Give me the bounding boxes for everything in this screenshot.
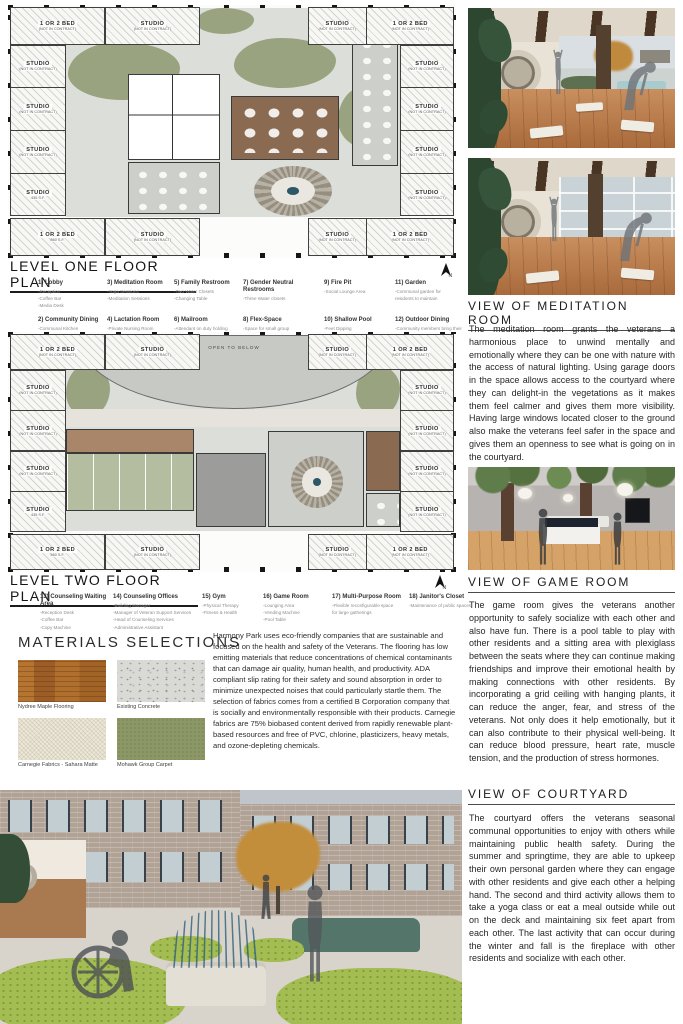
fabric-swatch — [18, 718, 106, 760]
unit-cell: STUDIO(NOT IN CONTRACT) — [105, 534, 201, 571]
legend-room-details: -Yoga Sessions -Meditation Sessions — [107, 288, 169, 302]
unit-cell: STUDIO(NOT IN CONTRACT) — [400, 491, 455, 532]
unit-sublabel: (NOT IN CONTRACT) — [19, 432, 56, 436]
plan2-garden-circle — [291, 456, 343, 508]
unit-sublabel: (NOT IN CONTRACT) — [392, 553, 429, 557]
wall-tv — [625, 498, 650, 523]
legend-room-name: 12) Outdoor Dining — [395, 317, 465, 324]
legend-item: 14) Counseling Offices -Building Manager… — [113, 594, 197, 631]
unit-sublabel: (NOT IN CONTRACT) — [408, 110, 445, 114]
wheelchair-user-silhouette — [68, 920, 146, 1004]
unit-cell: 1 OR 2 BED(NOT IN CONTRACT) — [366, 534, 454, 571]
legend-room-details: -Flexible reconfigurable space for large… — [332, 602, 404, 616]
legend-room-details: -Social Lounge Area — [324, 288, 390, 295]
fountain-basin — [166, 962, 266, 1006]
unit-cell: 1 OR 2 BED860 S.F. — [10, 534, 106, 571]
svg-text:N: N — [449, 273, 453, 278]
legend-room-details: -Lounging Area -Vending Machine -Pool Ta… — [263, 602, 327, 623]
legend-room-name: 4) Lactation Room — [107, 317, 169, 324]
legend-room-details: -Building Manager -Manager of Veteran Su… — [113, 602, 197, 630]
unit-sublabel: (NOT IN CONTRACT) — [408, 153, 445, 157]
material-caption: Nydree Maple Flooring — [18, 704, 106, 710]
unit-cell: 1 OR 2 BED(NOT IN CONTRACT) — [366, 218, 454, 257]
unit-sublabel: (NOT IN CONTRACT) — [134, 553, 171, 557]
unit-sublabel: (NOT IN CONTRACT) — [19, 110, 56, 114]
unit-sublabel: 860 S.F. — [51, 238, 65, 242]
unit-cell: STUDIO(NOT IN CONTRACT) — [10, 370, 67, 411]
north-arrow-icon: N — [438, 262, 454, 278]
plan2-units-right: STUDIO(NOT IN CONTRACT)STUDIO(NOT IN CON… — [400, 370, 454, 532]
unit-sublabel: (NOT IN CONTRACT) — [39, 27, 76, 31]
legend-item: 15) Gym -Physical Therapy -Fitness & Hea… — [202, 594, 258, 631]
unit-sublabel: (NOT IN CONTRACT) — [19, 472, 56, 476]
hanging-plants — [468, 467, 675, 498]
legend-room-name: 6) Mailroom — [174, 317, 238, 324]
fountain-jets — [173, 910, 259, 968]
concrete-swatch — [117, 660, 205, 702]
floor-plan-level-two: OPEN TO BELOW 1 OR 2 BED(NOT IN CONTRACT… — [8, 332, 456, 572]
globe-light — [563, 494, 573, 502]
unit-sublabel: (NOT IN CONTRACT) — [319, 27, 356, 31]
plant-silhouette — [468, 158, 501, 295]
legend-room-details: -Reception -Coffee Bar -Media Desk — [38, 288, 102, 309]
plan1-units-bottom-right: STUDIO(NOT IN CONTRACT)1 OR 2 BED(NOT IN… — [308, 218, 454, 256]
unit-sublabel: (NOT IN CONTRACT) — [392, 27, 429, 31]
material-caption: Existing Concrete — [117, 704, 205, 710]
unit-sublabel: (NOT IN CONTRACT) — [134, 353, 171, 357]
legend-room-name: 9) Fire Pit — [324, 280, 390, 287]
courtyard-render — [0, 790, 462, 1024]
legend-item: 17) Multi-Purpose Room -Flexible reconfi… — [332, 594, 404, 631]
floor-plan-level-one: 1 OR 2 BED(NOT IN CONTRACT)STUDIO(NOT IN… — [8, 5, 456, 258]
unit-sublabel: 435 S.F. — [31, 196, 45, 200]
legend-room-name: 10) Shallow Pool — [324, 317, 390, 324]
plan1-units-top-right: STUDIO(NOT IN CONTRACT)1 OR 2 BED(NOT IN… — [308, 7, 454, 45]
plan2-units-bottom-left: 1 OR 2 BED860 S.F.STUDIO(NOT IN CONTRACT… — [10, 534, 200, 570]
legend-room-name: 3) Meditation Room — [107, 280, 169, 287]
legend-room-name: 14) Counseling Offices — [113, 594, 197, 601]
unit-sublabel: (NOT IN CONTRACT) — [408, 196, 445, 200]
plan1-units-top-left: 1 OR 2 BED(NOT IN CONTRACT)STUDIO(NOT IN… — [10, 7, 200, 45]
unit-sublabel: (NOT IN CONTRACT) — [19, 153, 56, 157]
view-meditation-paragraph: The meditation room grants the veterans … — [469, 323, 675, 463]
legend-item: 5) Family Restroom -Two Water Closets -C… — [174, 280, 238, 310]
plan1-units-right: STUDIO(NOT IN CONTRACT)STUDIO(NOT IN CON… — [400, 45, 454, 216]
tree-trunk — [276, 886, 280, 914]
unit-sublabel: (NOT IN CONTRACT) — [134, 238, 171, 242]
presentation-board: 1 OR 2 BED(NOT IN CONTRACT)STUDIO(NOT IN… — [0, 0, 683, 1024]
yoga-figure-standing — [551, 44, 565, 100]
materials-title: MATERIALS SELECTIONS — [18, 634, 241, 651]
unit-cell: STUDIO(NOT IN CONTRACT) — [400, 130, 455, 174]
legend-item: 16) Game Room -Lounging Area -Vending Ma… — [263, 594, 327, 631]
legend-room-details: -Physical Therapy -Fitness & Health — [202, 602, 258, 616]
plan1-restroom-block — [128, 74, 220, 160]
material-caption: Mohawk Group Carpet — [117, 762, 205, 768]
plan1-garden-circle — [254, 166, 332, 216]
unit-cell: STUDIO435 S.F. — [10, 173, 67, 217]
unit-sublabel: (NOT IN CONTRACT) — [39, 353, 76, 357]
legend-item: 1) Lobby -Reception -Coffee Bar -Media D… — [38, 280, 102, 310]
legend-item: 13) Counseling Waiting Area -Reception D… — [40, 594, 108, 631]
unit-cell: STUDIO(NOT IN CONTRACT) — [105, 334, 201, 371]
unit-sublabel: (NOT IN CONTRACT) — [408, 472, 445, 476]
yoga-mats — [238, 103, 332, 153]
unit-cell: STUDIO(NOT IN CONTRACT) — [10, 451, 67, 492]
legend-room-name: 7) Gender Neutral Restrooms — [243, 280, 319, 294]
unit-cell: 1 OR 2 BED(NOT IN CONTRACT) — [366, 334, 454, 371]
level-two-legend: 13) Counseling Waiting Area -Reception D… — [40, 594, 473, 631]
unit-sublabel: (NOT IN CONTRACT) — [392, 238, 429, 242]
legend-room-name: 11) Garden — [395, 280, 465, 287]
game-room-render — [468, 467, 675, 570]
unit-cell: STUDIO(NOT IN CONTRACT) — [400, 410, 455, 451]
plan2-courtyard-below — [268, 431, 364, 527]
unit-sublabel: (NOT IN CONTRACT) — [408, 432, 445, 436]
legend-room-details: -Feet Dipping — [324, 325, 390, 332]
unit-cell: STUDIO(NOT IN CONTRACT) — [308, 534, 367, 571]
material-item-wood: Nydree Maple Flooring — [18, 660, 106, 710]
view-courtyard-heading: VIEW OF COURTYARD — [468, 787, 675, 805]
unit-sublabel: (NOT IN CONTRACT) — [408, 391, 445, 395]
materials-paragraph: Harmony Park uses eco-friendly companies… — [213, 630, 456, 751]
wood-column — [588, 174, 602, 245]
legend-item: 18) Janitor's Closet -Maintenance of pub… — [409, 594, 473, 631]
wood-flooring-swatch — [18, 660, 106, 702]
plan2-counseling-offices — [66, 453, 194, 511]
standing-person-silhouette — [300, 876, 330, 992]
legend-room-name: 8) Flex-Space — [243, 317, 319, 324]
plant-silhouette — [468, 8, 501, 148]
window-row — [8, 800, 232, 832]
landscape-planting — [234, 38, 336, 88]
meditation-room-render-closed — [468, 158, 675, 295]
open-to-below-label: OPEN TO BELOW — [208, 345, 259, 350]
unit-cell: STUDIO(NOT IN CONTRACT) — [105, 218, 201, 257]
material-item-carpet: Mohawk Group Carpet — [117, 718, 205, 768]
view-game-room-paragraph: The game room gives the veterans another… — [469, 599, 675, 765]
plan2-multi-purpose-room — [366, 431, 400, 491]
legend-room-name: 17) Multi-Purpose Room — [332, 594, 404, 601]
unit-cell: 1 OR 2 BED860 S.F. — [10, 218, 106, 257]
unit-sublabel: (NOT IN CONTRACT) — [408, 513, 445, 517]
view-courtyard-paragraph: The courtyard offers the veterans season… — [469, 812, 675, 965]
unit-cell: STUDIO(NOT IN CONTRACT) — [400, 451, 455, 492]
legend-room-details: -Reception Desk -Coffee Bar -Copy Machin… — [40, 609, 108, 630]
yoga-figure-bending — [613, 207, 657, 263]
unit-cell: STUDIO(NOT IN CONTRACT) — [308, 218, 367, 257]
plan2-gym — [196, 453, 266, 527]
person-silhouette — [534, 508, 552, 566]
legend-room-details: -Three Water closets — [243, 295, 319, 302]
plan2-counseling-corridor — [66, 429, 194, 453]
unit-cell: STUDIO(NOT IN CONTRACT) — [105, 7, 201, 46]
unit-sublabel: (NOT IN CONTRACT) — [19, 67, 56, 71]
legend-room-name: 16) Game Room — [263, 594, 327, 601]
person-silhouette — [609, 512, 626, 566]
plan2-game-room — [366, 493, 400, 527]
legend-room-details: -Communal garden for residents to mainta… — [395, 288, 465, 302]
wood-column — [596, 25, 610, 98]
unit-cell: 1 OR 2 BED(NOT IN CONTRACT) — [366, 7, 454, 46]
unit-cell: STUDIO(NOT IN CONTRACT) — [10, 87, 67, 131]
legend-room-name: 13) Counseling Waiting Area — [40, 594, 108, 608]
unit-cell: STUDIO435 S.F. — [10, 491, 67, 532]
yoga-figure-bending — [617, 56, 661, 112]
plan1-meditation-room — [231, 96, 339, 160]
meditation-room-render-open — [468, 8, 675, 148]
legend-item: 7) Gender Neutral Restrooms -Three Water… — [243, 280, 319, 310]
plan1-flex-space — [128, 162, 220, 214]
unit-sublabel: 435 S.F. — [31, 513, 45, 517]
unit-sublabel: (NOT IN CONTRACT) — [408, 67, 445, 71]
legend-room-name: 1) Lobby — [38, 280, 102, 287]
legend-room-details: -Two Water Closets -Changing Table — [174, 288, 238, 302]
carpet-swatch — [117, 718, 205, 760]
unit-cell: STUDIO(NOT IN CONTRACT) — [10, 45, 67, 89]
unit-sublabel: 860 S.F. — [51, 553, 65, 557]
unit-cell: STUDIO(NOT IN CONTRACT) — [10, 130, 67, 174]
plan2-units-left: STUDIO(NOT IN CONTRACT)STUDIO(NOT IN CON… — [10, 370, 66, 532]
view-game-room-heading: VIEW OF GAME ROOM — [468, 575, 675, 593]
north-arrow-icon: N — [432, 574, 448, 590]
plan2-units-top-left: 1 OR 2 BED(NOT IN CONTRACT)STUDIO(NOT IN… — [10, 334, 200, 370]
legend-room-details: -Private Nursing Room — [107, 325, 169, 332]
plan2-units-bottom-right: STUDIO(NOT IN CONTRACT)1 OR 2 BED(NOT IN… — [308, 534, 454, 570]
unit-cell: 1 OR 2 BED(NOT IN CONTRACT) — [10, 334, 106, 371]
legend-item: 9) Fire Pit -Social Lounge Area — [324, 280, 390, 310]
level-one-legend: 1) Lobby -Reception -Coffee Bar -Media D… — [38, 280, 465, 339]
legend-room-name: 15) Gym — [202, 594, 258, 601]
legend-room-name: 2) Community Dining — [38, 317, 102, 324]
unit-cell: STUDIO(NOT IN CONTRACT) — [308, 7, 367, 46]
unit-cell: STUDIO(NOT IN CONTRACT) — [400, 173, 455, 217]
unit-sublabel: (NOT IN CONTRACT) — [392, 353, 429, 357]
unit-cell: STUDIO(NOT IN CONTRACT) — [10, 410, 67, 451]
material-item-concrete: Existing Concrete — [117, 660, 205, 710]
unit-sublabel: (NOT IN CONTRACT) — [319, 353, 356, 357]
material-caption: Carnegie Fabrics - Sahara Matte — [18, 762, 106, 768]
plan1-units-bottom-left: 1 OR 2 BED860 S.F.STUDIO(NOT IN CONTRACT… — [10, 218, 200, 256]
unit-cell: 1 OR 2 BED(NOT IN CONTRACT) — [10, 7, 106, 46]
legend-room-details: -Maintenance of public spaces — [409, 602, 473, 609]
landscape-planting — [196, 8, 254, 34]
legend-item: 3) Meditation Room -Yoga Sessions -Medit… — [107, 280, 169, 310]
unit-cell: STUDIO(NOT IN CONTRACT) — [400, 370, 455, 411]
plan2-walkway — [66, 409, 400, 427]
legend-item: 11) Garden -Communal garden for resident… — [395, 280, 465, 310]
unit-sublabel: (NOT IN CONTRACT) — [134, 27, 171, 31]
walking-person-silhouette — [258, 874, 274, 920]
legend-room-name: 5) Family Restroom — [174, 280, 238, 287]
unit-sublabel: (NOT IN CONTRACT) — [19, 391, 56, 395]
unit-cell: STUDIO(NOT IN CONTRACT) — [400, 45, 455, 89]
unit-sublabel: (NOT IN CONTRACT) — [319, 553, 356, 557]
legend-room-name: 18) Janitor's Closet — [409, 594, 473, 601]
plan2-units-top-right: STUDIO(NOT IN CONTRACT)1 OR 2 BED(NOT IN… — [308, 334, 454, 370]
material-item-fabric: Carnegie Fabrics - Sahara Matte — [18, 718, 106, 768]
unit-cell: STUDIO(NOT IN CONTRACT) — [308, 334, 367, 371]
svg-text:N: N — [443, 585, 447, 590]
globe-light — [518, 488, 532, 499]
materials-grid: Nydree Maple Flooring Existing Concrete … — [18, 660, 205, 768]
unit-sublabel: (NOT IN CONTRACT) — [319, 238, 356, 242]
unit-cell: STUDIO(NOT IN CONTRACT) — [400, 87, 455, 131]
plan1-units-left: STUDIO(NOT IN CONTRACT)STUDIO(NOT IN CON… — [10, 45, 66, 216]
yoga-figure-standing — [547, 191, 561, 247]
